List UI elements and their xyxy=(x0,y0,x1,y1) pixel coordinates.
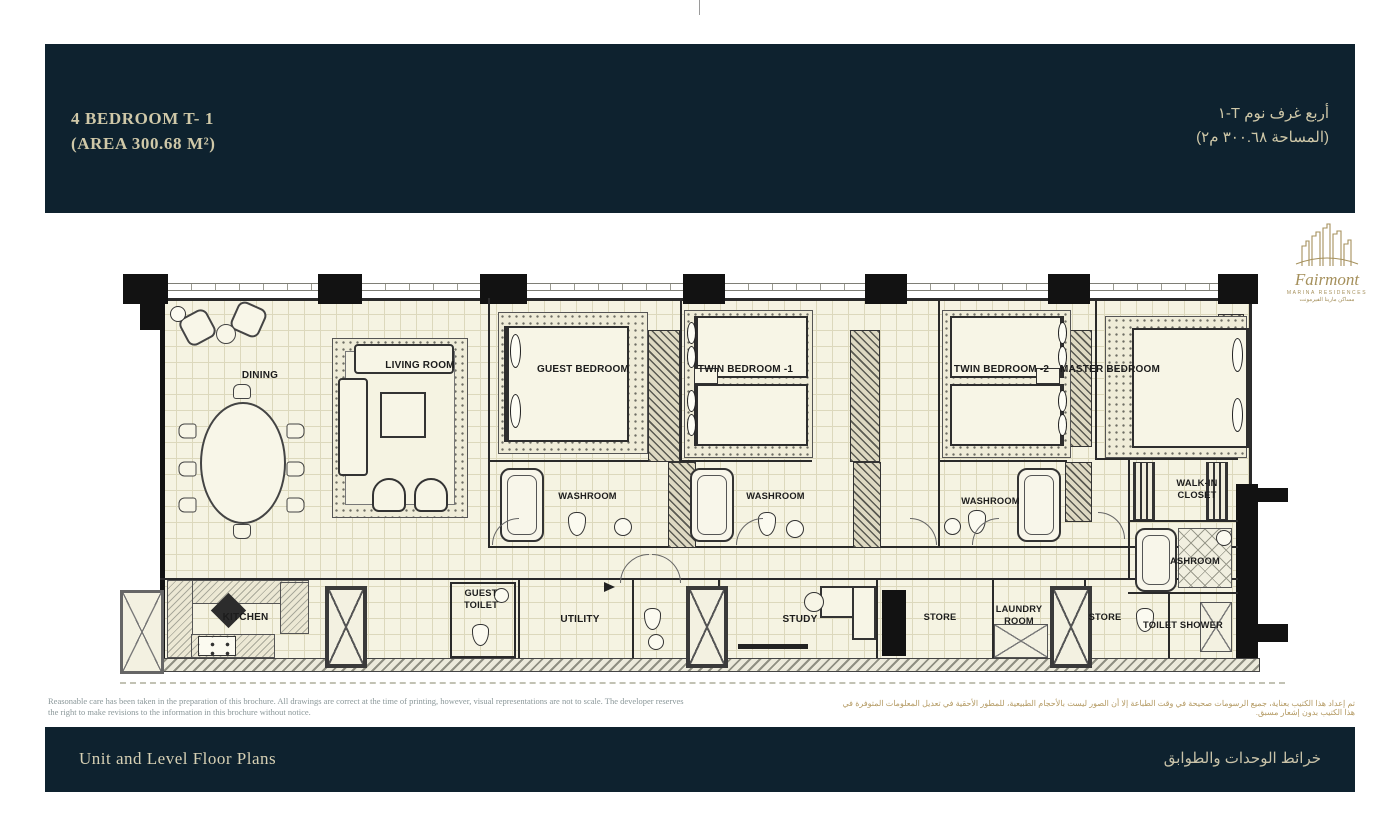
partition-wall xyxy=(680,460,812,462)
unit-area-line: (AREA 300.68 M²) xyxy=(71,131,216,156)
partition-wall xyxy=(938,460,1067,462)
room-label-washroom-2: WASHROOM xyxy=(723,491,828,503)
pillow xyxy=(1232,398,1243,432)
window-strip xyxy=(725,283,865,291)
footer-title-arabic: خرائط الوحدات والطوابق xyxy=(1164,749,1321,767)
partition-wall xyxy=(938,298,940,548)
dining-chair xyxy=(179,498,197,513)
right-wall-fin-top xyxy=(1258,488,1288,502)
partition-wall xyxy=(488,298,490,548)
room-label-washroom-3: WASHROOM xyxy=(938,496,1043,508)
pillow xyxy=(1058,414,1067,436)
pillow xyxy=(510,394,521,428)
wardrobe-block xyxy=(850,330,880,462)
lounge-chair xyxy=(414,478,448,512)
dining-chair xyxy=(287,462,305,477)
dining-chair xyxy=(233,384,251,399)
room-label-store-1: STORE xyxy=(906,612,974,624)
twin-bed xyxy=(950,384,1064,446)
kitchen-appliance xyxy=(280,582,309,634)
sink xyxy=(648,634,664,650)
unit-title-arabic: أربع غرف نوم T-١ (المساحة ٣٠٠.٦٨ م٢) xyxy=(1196,102,1329,150)
crop-mark xyxy=(699,0,700,15)
pillow xyxy=(1058,322,1067,344)
room-label-toilet-shower: TOILET SHOWER xyxy=(1130,620,1236,632)
wardrobe-block xyxy=(648,330,680,462)
lift-shaft xyxy=(325,586,367,668)
room-label-walk-in-closet: WALK-IN CLOSET xyxy=(1166,478,1228,501)
laundry-cabinet xyxy=(994,624,1048,658)
header-band: 4 BEDROOM T- 1 (AREA 300.68 M²) أربع غرف… xyxy=(45,44,1355,213)
bathtub xyxy=(690,468,734,542)
room-label-utility: UTILITY xyxy=(534,614,626,626)
side-table xyxy=(216,324,236,344)
room-label-master-washroom: ASHROOM xyxy=(1150,556,1240,568)
dining-chair xyxy=(287,424,305,439)
window-strip xyxy=(168,283,318,291)
partition-wall xyxy=(1095,458,1238,460)
desk-chair xyxy=(804,592,824,612)
room-label-twin-bedroom-2: TWIN BEDROOM -2 xyxy=(944,364,1059,376)
room-label-kitchen: KITCHEN xyxy=(198,612,293,624)
pillow xyxy=(687,414,696,436)
dining-chair xyxy=(233,524,251,539)
unit-title-arabic-line1: أربع غرف نوم T-١ xyxy=(1196,102,1329,126)
sofa xyxy=(338,378,368,476)
room-label-study: STUDY xyxy=(754,614,846,626)
dining-chair xyxy=(287,498,305,513)
partition-wall xyxy=(1128,592,1238,594)
desk-return xyxy=(852,586,876,640)
sink xyxy=(1216,530,1232,546)
column xyxy=(1218,274,1258,304)
pillow xyxy=(1232,338,1243,372)
service-shaft xyxy=(853,462,881,548)
window-strip xyxy=(907,283,1048,291)
boundary-dashed-line xyxy=(120,682,1285,684)
guest-bed xyxy=(504,326,629,442)
stove xyxy=(198,636,236,656)
store-shaft xyxy=(882,590,906,656)
disclaimer-arabic: تم إعداد هذا الكتيب بعناية، جميع الرسوما… xyxy=(830,699,1355,717)
column xyxy=(865,274,907,304)
room-label-guest-toilet: GUEST TOILET xyxy=(449,588,513,611)
partition-wall xyxy=(1095,298,1097,460)
room-label-living: LIVING ROOM xyxy=(360,360,480,372)
entry-arrow-icon xyxy=(604,582,615,592)
column-stem xyxy=(140,302,165,330)
fairmont-towers-icon xyxy=(1294,222,1360,268)
external-shaft xyxy=(120,590,164,674)
kitchen-counter xyxy=(167,580,193,658)
brochure-page: 4 BEDROOM T- 1 (AREA 300.68 M²) أربع غرف… xyxy=(0,0,1400,834)
dining-chair xyxy=(179,424,197,439)
window-strip xyxy=(527,283,683,291)
column xyxy=(683,274,725,304)
right-wall xyxy=(1236,484,1258,660)
pillow xyxy=(687,322,696,344)
closet-wardrobe xyxy=(1133,462,1155,520)
room-label-washroom-1: WASHROOM xyxy=(535,491,640,503)
unit-title-english: 4 BEDROOM T- 1 (AREA 300.68 M²) xyxy=(71,106,216,156)
partition-wall xyxy=(1128,520,1238,522)
column xyxy=(318,274,362,304)
partition-wall xyxy=(876,580,878,658)
footer-title-english: Unit and Level Floor Plans xyxy=(79,749,276,769)
column xyxy=(123,274,168,304)
room-label-master-bedroom: MASTER BEDROOM xyxy=(1055,364,1165,376)
partition-wall xyxy=(632,580,634,658)
service-shaft xyxy=(1065,462,1092,522)
tv-console xyxy=(738,644,808,649)
sink xyxy=(614,518,632,536)
room-label-store-2: STORE xyxy=(1072,612,1138,624)
partition-wall xyxy=(518,580,520,658)
partition-wall xyxy=(488,460,652,462)
twin-bed xyxy=(694,384,808,446)
dining-chair xyxy=(179,462,197,477)
lounge-chair xyxy=(372,478,406,512)
pillow xyxy=(510,334,521,368)
floor-fixture xyxy=(170,306,186,322)
room-label-dining: DINING xyxy=(180,370,340,382)
sink xyxy=(944,518,961,535)
column xyxy=(1048,274,1090,304)
window-strip xyxy=(362,283,480,291)
room-label-laundry: LAUNDRY ROOM xyxy=(990,604,1048,627)
disclaimer-english: Reasonable care has been taken in the pr… xyxy=(48,696,696,718)
unit-area-arabic-line: (المساحة ٣٠٠.٦٨ م٢) xyxy=(1196,126,1329,150)
right-wall-fin-bottom xyxy=(1258,624,1288,642)
footer-band: Unit and Level Floor Plans خرائط الوحدات… xyxy=(45,727,1355,792)
unit-title-line1: 4 BEDROOM T- 1 xyxy=(71,106,216,131)
sink xyxy=(786,520,804,538)
dining-table xyxy=(200,402,286,524)
room-label-twin-bedroom-1: TWIN BEDROOM -1 xyxy=(688,364,803,376)
floor-plan: DINING LIVING ROOM GUEST BEDROOM TWIN BE… xyxy=(120,272,1300,712)
corridor-wall xyxy=(160,578,1238,580)
window-strip xyxy=(1090,283,1218,291)
pillow xyxy=(687,390,696,412)
coffee-table xyxy=(380,392,426,438)
room-label-guest-bedroom: GUEST BEDROOM xyxy=(524,364,642,376)
lift-shaft xyxy=(686,586,728,668)
lift-shaft xyxy=(1050,586,1092,668)
pillow xyxy=(1058,390,1067,412)
partition-wall xyxy=(1128,458,1130,578)
